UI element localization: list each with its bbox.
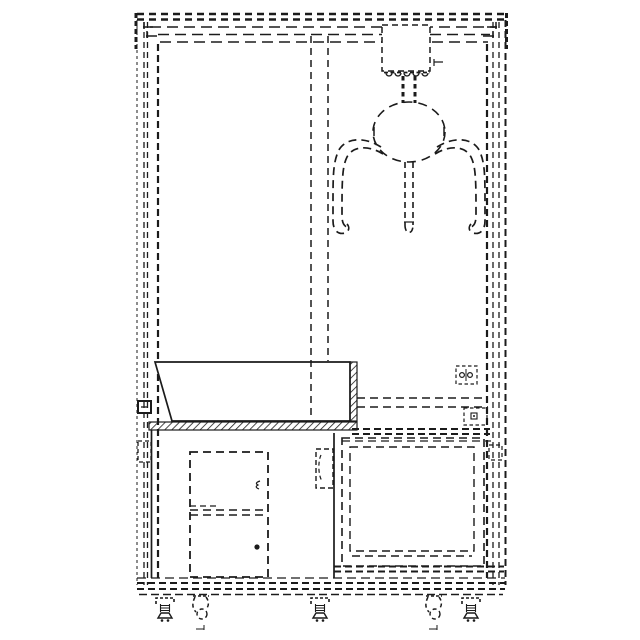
- machine-drawing: [0, 0, 640, 640]
- sensor-block-b: [464, 408, 487, 425]
- upper-door: [190, 452, 268, 577]
- cabinet-frame-right: [487, 20, 506, 585]
- claw-arm-left: [333, 140, 383, 234]
- hanger-bars: [403, 76, 415, 103]
- base: [137, 567, 505, 595]
- claw-arm-right: [435, 140, 485, 234]
- right-frame-lower-bracket: [489, 445, 502, 460]
- claw-head: [373, 102, 445, 162]
- upper-door-latch: [256, 481, 260, 489]
- claw-center-finger: [404, 162, 414, 233]
- top-header: [136, 13, 507, 49]
- right-chamber: [342, 438, 484, 566]
- caster: [193, 596, 209, 630]
- leveling-foot: [311, 598, 329, 622]
- left-lower-cabinet: [152, 430, 335, 578]
- screenshot-canvas: [0, 0, 640, 640]
- claw-pivot-pins: [374, 127, 444, 136]
- door-bracket: [316, 449, 333, 488]
- carriage-rollers: [384, 73, 430, 77]
- leveling-foot: [462, 598, 480, 622]
- shelf-hatch-bar: [149, 422, 357, 430]
- lower-door-knob: [254, 544, 259, 549]
- prize-bin: [149, 362, 357, 430]
- step-ledge: [342, 398, 491, 441]
- leveling-feet: [156, 598, 480, 622]
- right-chamber-inner-panel: [350, 447, 474, 551]
- caster: [426, 596, 442, 630]
- cabinet-frame-left: [137, 20, 158, 585]
- lower-door: [254, 544, 259, 549]
- carriage-tick: [434, 59, 443, 66]
- carriage: [382, 25, 443, 103]
- claw: [333, 102, 485, 233]
- sensor-block-a: [456, 366, 477, 384]
- leveling-foot: [156, 598, 174, 622]
